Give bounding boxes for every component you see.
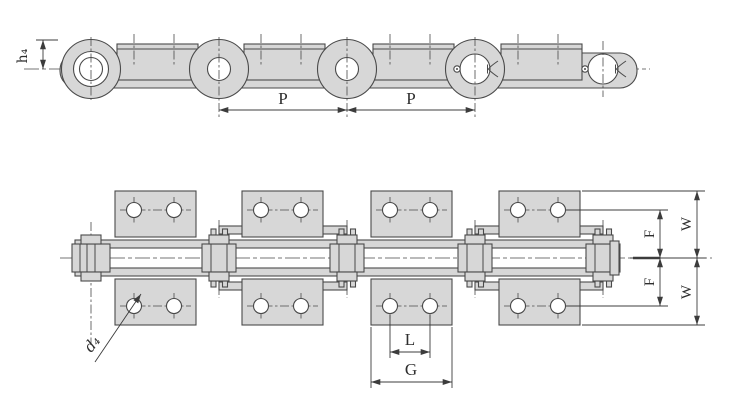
bolt-hole (294, 203, 309, 218)
pitch-label: P (406, 89, 415, 108)
dimension-h4: h₄ (15, 40, 58, 69)
bolt-hole (167, 299, 182, 314)
chain-technical-drawing: h₄ P P (0, 0, 738, 404)
W-label: W (679, 284, 695, 299)
F-label: F (642, 230, 658, 238)
h4-label: h₄ (15, 48, 31, 63)
bolt-hole (551, 203, 566, 218)
bolt-hole (254, 299, 269, 314)
bolt-hole (423, 203, 438, 218)
bolt-hole (511, 203, 526, 218)
bolt-hole (383, 299, 398, 314)
bolt-hole (167, 203, 182, 218)
W-label: W (679, 216, 695, 231)
bolt-hole (383, 203, 398, 218)
F-label: F (642, 278, 658, 286)
bolt-hole (423, 299, 438, 314)
L-label: L (405, 330, 415, 349)
plan-view: d₄ L G F F (60, 191, 712, 388)
end-plate (610, 241, 619, 275)
bolt-hole (254, 203, 269, 218)
end-link (72, 244, 110, 272)
bolt-hole (294, 299, 309, 314)
bolt-hole (511, 299, 526, 314)
G-label: G (405, 360, 417, 379)
bolt-hole (127, 203, 142, 218)
bolt-hole (551, 299, 566, 314)
pitch-label: P (278, 89, 287, 108)
bolt-hole (127, 299, 142, 314)
side-view: h₄ P P (15, 34, 650, 117)
d4-label: d₄ (80, 332, 104, 355)
